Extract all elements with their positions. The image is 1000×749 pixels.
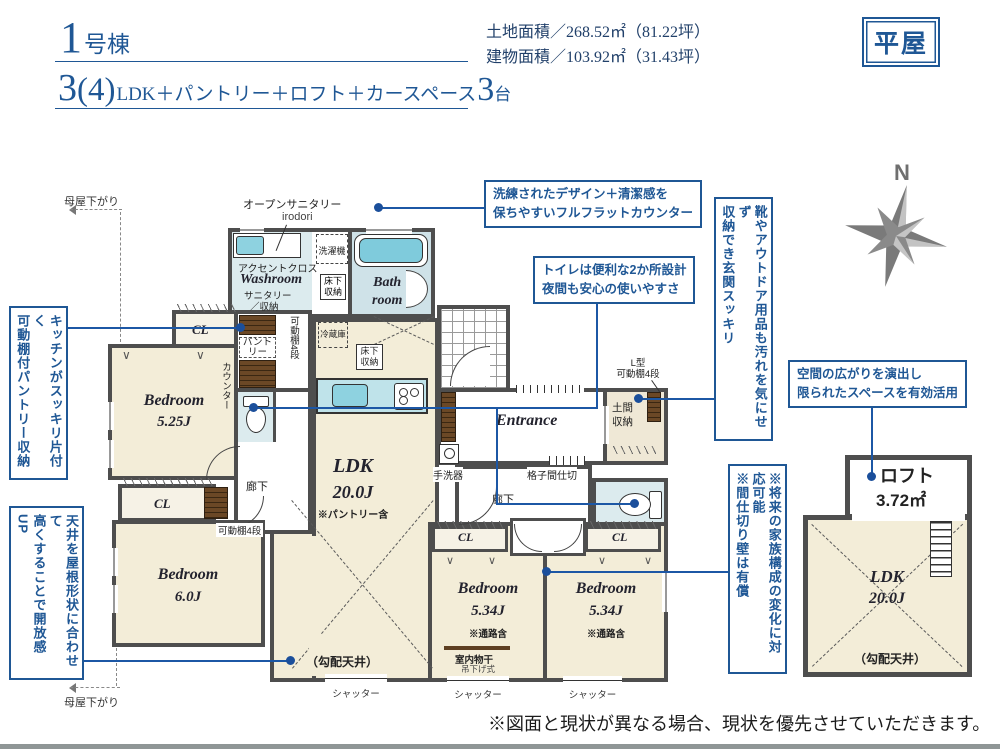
leader-line [48, 327, 240, 329]
bedroom4-name: Bedroom [566, 580, 646, 598]
l-shelf-note: L型 可動棚4段 [608, 358, 668, 381]
vanity-sink [236, 236, 264, 255]
window [106, 440, 114, 468]
laundry-pole [444, 646, 510, 650]
ldk-note: ※パントリー含 [312, 506, 394, 521]
bedroom4-note: ※通路含 [566, 626, 646, 640]
open-sanitary-label: オープンサニタリー [243, 196, 341, 212]
leader-line [496, 407, 498, 505]
corridor-label-1: 廊下 [246, 478, 268, 494]
kitchen-sink [332, 384, 368, 407]
leader-line [641, 398, 715, 400]
single-story-badge: 平屋 [862, 17, 940, 67]
closet-1-label: CL [192, 322, 209, 338]
badge-text: 平屋 [874, 24, 928, 60]
hand-wash-basin [439, 444, 459, 464]
arrow-head [64, 205, 76, 215]
shutter-window [563, 676, 622, 685]
washroom-label: Washroom [240, 272, 302, 288]
leader-line [496, 503, 634, 505]
window [106, 402, 114, 430]
shutter-label: シャッター [563, 687, 622, 701]
front-door [516, 385, 584, 393]
header-rule-bottom [55, 108, 468, 109]
bedroom2-name: Bedroom [148, 566, 228, 584]
closet-2-shelf [204, 487, 228, 519]
bedroom2-size: 6.0J [148, 589, 228, 606]
underfloor-storage-1: 床下収納 [320, 274, 346, 300]
callout-pantry: キッチンがスッキリ片付く 可動棚付パントリー収納 [9, 306, 68, 480]
window [366, 226, 412, 234]
hanger-mark: ∨ [644, 554, 652, 567]
pantry-label: パントリー [239, 337, 276, 358]
sloped-ceiling-label: （勾配天井） [306, 653, 378, 670]
unit-suffix: 号棟 [84, 25, 130, 59]
moyasagari-arrow-bottom [70, 687, 120, 688]
leader-dot [630, 499, 639, 508]
hanger-mark: ∨ [446, 554, 454, 567]
loft-sloped-label: （勾配天井） [854, 650, 926, 667]
lattice-partition-icon [549, 456, 585, 465]
leader-dot [867, 472, 876, 481]
moyasagari-line [120, 212, 121, 342]
arrow-head [64, 683, 76, 693]
plan-desc: LDK＋パントリー＋ロフト＋カースペース [116, 79, 476, 106]
plan-type-line: 3 (4) LDK＋パントリー＋ロフト＋カースペース 3 台 [58, 66, 511, 108]
leader-line [382, 207, 484, 209]
disclaimer: ※図面と現状が異なる場合、現状を優先させていただきます。 [488, 710, 990, 736]
basin-bowl [444, 448, 455, 459]
bottom-edge-bar [0, 744, 1000, 749]
underfloor-storage-2: 床下収納 [356, 344, 383, 370]
closet-3-label: CL [458, 530, 473, 545]
washer-box: 洗濯機 [316, 234, 348, 264]
closet-2-label: CL [154, 496, 171, 512]
moyasagari-arrow-top [70, 209, 122, 210]
irodori-label: irodori [282, 211, 313, 223]
bedroom3-size: 5.34J [448, 603, 528, 620]
loft-ldk-size: 20.0J [847, 590, 927, 608]
shutter-window [325, 674, 387, 683]
callout-high-ceiling: 天井を屋根形状に合わせて 高くすることで開放感UP [9, 506, 84, 680]
bedroom1-size: 5.25J [134, 414, 214, 431]
closet-hatch [587, 521, 659, 529]
bedroom4-size: 5.34J [566, 603, 646, 620]
floorplan-sheet: 1 号棟 3 (4) LDK＋パントリー＋ロフト＋カースペース 3 台 土地面積… [0, 0, 1000, 749]
moyasagari-label-bottom: 母屋下がり [64, 694, 119, 710]
closet-hatch [174, 304, 236, 312]
shelf-note-bedroom2: 可動棚4段 [216, 523, 263, 537]
bedroom1-name: Bedroom [134, 392, 214, 410]
loft-ladder [930, 521, 952, 577]
hanger-mark: ∨ [598, 554, 606, 567]
doma-shelf [647, 392, 661, 422]
closet-4-label: CL [612, 530, 627, 545]
window [110, 585, 118, 613]
plan-count: 3 [477, 71, 494, 109]
plan-num: 3 [58, 66, 77, 110]
loft-name: ロフト [880, 462, 934, 488]
leader-line [871, 404, 873, 477]
leader-line [48, 660, 290, 662]
burner [410, 388, 419, 397]
ldk-name: LDK [320, 455, 386, 478]
shutter-window [447, 676, 509, 685]
callout-partition: ※将来の家族構成の変化に対応可能 ※間仕切り壁は有償 [728, 464, 787, 674]
compass-north-icon: N [838, 158, 958, 288]
hanger-mark: ∨ [122, 348, 131, 362]
header-rule-top [55, 61, 468, 62]
stove [394, 383, 424, 410]
lattice-partition-label: 格子間仕切 [527, 467, 577, 482]
window [110, 548, 118, 576]
leader-dot [249, 403, 258, 412]
shutter-label: シャッター [325, 686, 387, 700]
shutter-label: シャッター [447, 687, 509, 701]
doma-label: 土間収納 [612, 402, 642, 429]
doma-slide-door [601, 406, 609, 444]
doma-hatch [610, 446, 658, 454]
callout-loft-space: 空間の広がりを演出し 限られたスペースを有効活用 [788, 360, 967, 408]
counter-note: カウンター [218, 362, 232, 410]
fridge-box: 冷蔵庫 [318, 322, 348, 348]
leader-dot [236, 323, 245, 332]
burner [399, 396, 408, 405]
leader-dot [286, 656, 295, 665]
callout-entrance-storage: 靴やアウトドア用品も汚れを気にせず 収納でき玄関スッキリ [714, 197, 773, 441]
bedroom3-name: Bedroom [448, 580, 528, 598]
leader-line [596, 300, 598, 408]
leader-dot [542, 567, 551, 576]
hanger-mark: ∨ [488, 554, 496, 567]
plan-paren: (4) [77, 72, 115, 109]
loft-merge-patch [852, 511, 965, 521]
leader-line [550, 571, 730, 573]
svg-text:N: N [894, 160, 910, 185]
leader-line [253, 407, 598, 409]
sanitary-storage-label2: ／収納 [250, 299, 279, 313]
washer-label: 洗濯機 [317, 244, 347, 257]
leader-dot [374, 203, 383, 212]
loft-size: 3.72㎡ [876, 486, 926, 511]
callout-flat-counter: 洗練されたデザイン＋清潔感を 保ちやすいフルフラットカウンター [484, 180, 702, 228]
entrance-label: Entrance [496, 412, 557, 430]
plan-unit: 台 [494, 80, 511, 105]
bathroom-label: Bath room [372, 274, 402, 309]
building-area: 建物面積／103.92㎡（31.43坪） [486, 43, 710, 67]
indoor-drying-sub: 吊下げ式 [461, 663, 495, 675]
land-area: 土地面積／268.52㎡（81.22坪） [486, 18, 710, 42]
bedroom3-note: ※通路含 [448, 626, 528, 640]
hanger-mark: ∨ [196, 348, 205, 362]
moyasagari-line [116, 648, 117, 686]
unit-title: 1 号棟 [60, 12, 130, 63]
closet-hatch [120, 478, 214, 486]
loft-ldk-name: LDK [847, 567, 927, 587]
pantry-shelf-note: 可動棚4段 [286, 316, 300, 359]
shoe-cabinet [441, 392, 456, 442]
callout-two-toilets: トイレは便利な2か所設計 夜間も安心の使いやすさ [533, 256, 695, 304]
leader-dot [634, 394, 643, 403]
window [662, 572, 670, 612]
hand-wash-label: 手洗器 [433, 467, 463, 482]
unit-number: 1 [60, 12, 82, 63]
ldk-size: 20.0J [320, 482, 386, 503]
pantry-shelf-bottom [239, 360, 276, 388]
bathtub-water [359, 238, 423, 263]
